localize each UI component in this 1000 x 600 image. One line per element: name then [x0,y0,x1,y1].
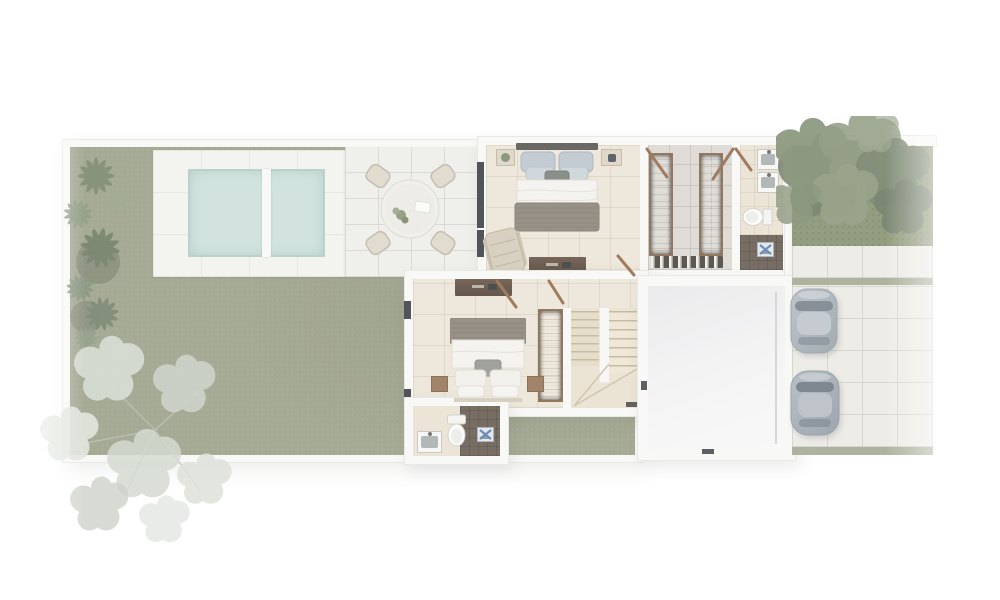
table-book [414,201,430,213]
edge-fade [885,125,1000,465]
parked-car [789,287,839,355]
open-room-floor [648,286,785,450]
clothing-rack [699,153,723,256]
dining-chair [364,162,392,189]
shower-fixture [477,427,494,442]
toilet [741,207,773,227]
glass-wall-line [775,292,777,444]
clothing-rack [649,153,673,256]
window-glass-strip [477,162,484,228]
door-threshold [702,449,714,454]
swimming-pool [188,169,325,257]
dining-chair [364,229,392,256]
pool-divider-ledge [262,169,271,257]
window-glass-strip [404,301,411,319]
nightstand [431,376,448,392]
parked-car [789,369,841,437]
vanity-sink [417,431,442,453]
interior-wall [563,308,571,408]
door-threshold [641,381,647,390]
dining-chair [429,162,457,189]
nightstand [527,376,544,392]
outdoor-dining-set [352,152,468,264]
floor-plan-canvas [0,0,1000,600]
staircase [571,308,640,408]
hall-console [455,279,512,296]
stair-flight-left [571,311,600,366]
nightstand-with-lamp [601,149,622,166]
shower-fixture [757,242,774,257]
bed-double [514,143,600,233]
dining-chair [429,229,457,256]
edge-fade [0,125,85,555]
toilet [446,414,467,449]
bed-double [450,318,526,402]
shoe-row [651,256,723,268]
nightstand-with-plant [496,149,515,166]
